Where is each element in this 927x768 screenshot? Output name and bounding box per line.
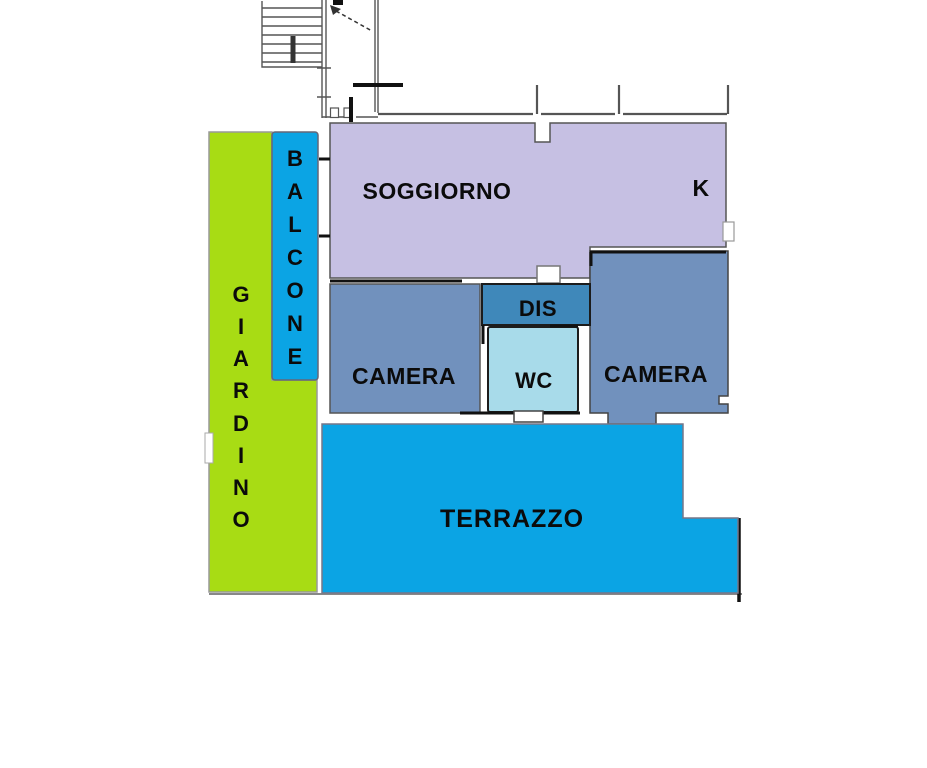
balcone-letter: N bbox=[287, 311, 303, 336]
staircase bbox=[262, 0, 378, 118]
label-camera-left: CAMERA bbox=[352, 363, 456, 389]
label-soggiorno: SOGGIORNO bbox=[363, 178, 512, 204]
soggiorno-wall-notch bbox=[723, 222, 734, 241]
door-frame bbox=[331, 108, 339, 118]
giardino-letter: D bbox=[233, 411, 249, 436]
label-terrazzo: TERRAZZO bbox=[440, 505, 584, 533]
label-balcone: B A L C O N E bbox=[286, 146, 303, 369]
dis-top-notch bbox=[537, 266, 560, 283]
giardino-letter: G bbox=[232, 282, 249, 307]
giardino-letter: R bbox=[233, 378, 249, 403]
giardino-letter: I bbox=[238, 443, 244, 468]
garden-edge-notch bbox=[205, 433, 213, 463]
giardino-letter: A bbox=[233, 346, 249, 371]
room-camera-left bbox=[330, 284, 480, 413]
stair-direction-arrow bbox=[336, 11, 372, 31]
balcone-letter: B bbox=[287, 146, 303, 171]
wc-window bbox=[514, 411, 543, 422]
label-wc: WC bbox=[515, 368, 553, 393]
floor-plan: SOGGIORNO K CAMERA CAMERA DIS WC TERRAZZ… bbox=[0, 0, 927, 768]
balcone-letter: L bbox=[288, 212, 301, 237]
top-wall-line bbox=[378, 85, 728, 114]
balcone-letter: A bbox=[287, 179, 303, 204]
stair-walls bbox=[262, 0, 378, 118]
label-dis: DIS bbox=[519, 296, 557, 321]
giardino-letter: I bbox=[238, 314, 244, 339]
balcone-letter: O bbox=[286, 278, 303, 303]
label-camera-right: CAMERA bbox=[604, 361, 708, 387]
floor-plan-drawing: SOGGIORNO K CAMERA CAMERA DIS WC TERRAZZ… bbox=[0, 0, 927, 768]
room-camera-right bbox=[590, 251, 728, 424]
stair-arrow-head bbox=[330, 5, 341, 15]
giardino-letter: O bbox=[232, 507, 249, 532]
balcone-letter: C bbox=[287, 245, 303, 270]
stair-landing-mark bbox=[333, 0, 343, 5]
balcone-letter: E bbox=[288, 344, 303, 369]
label-kitchen: K bbox=[692, 175, 709, 201]
giardino-letter: N bbox=[233, 475, 249, 500]
